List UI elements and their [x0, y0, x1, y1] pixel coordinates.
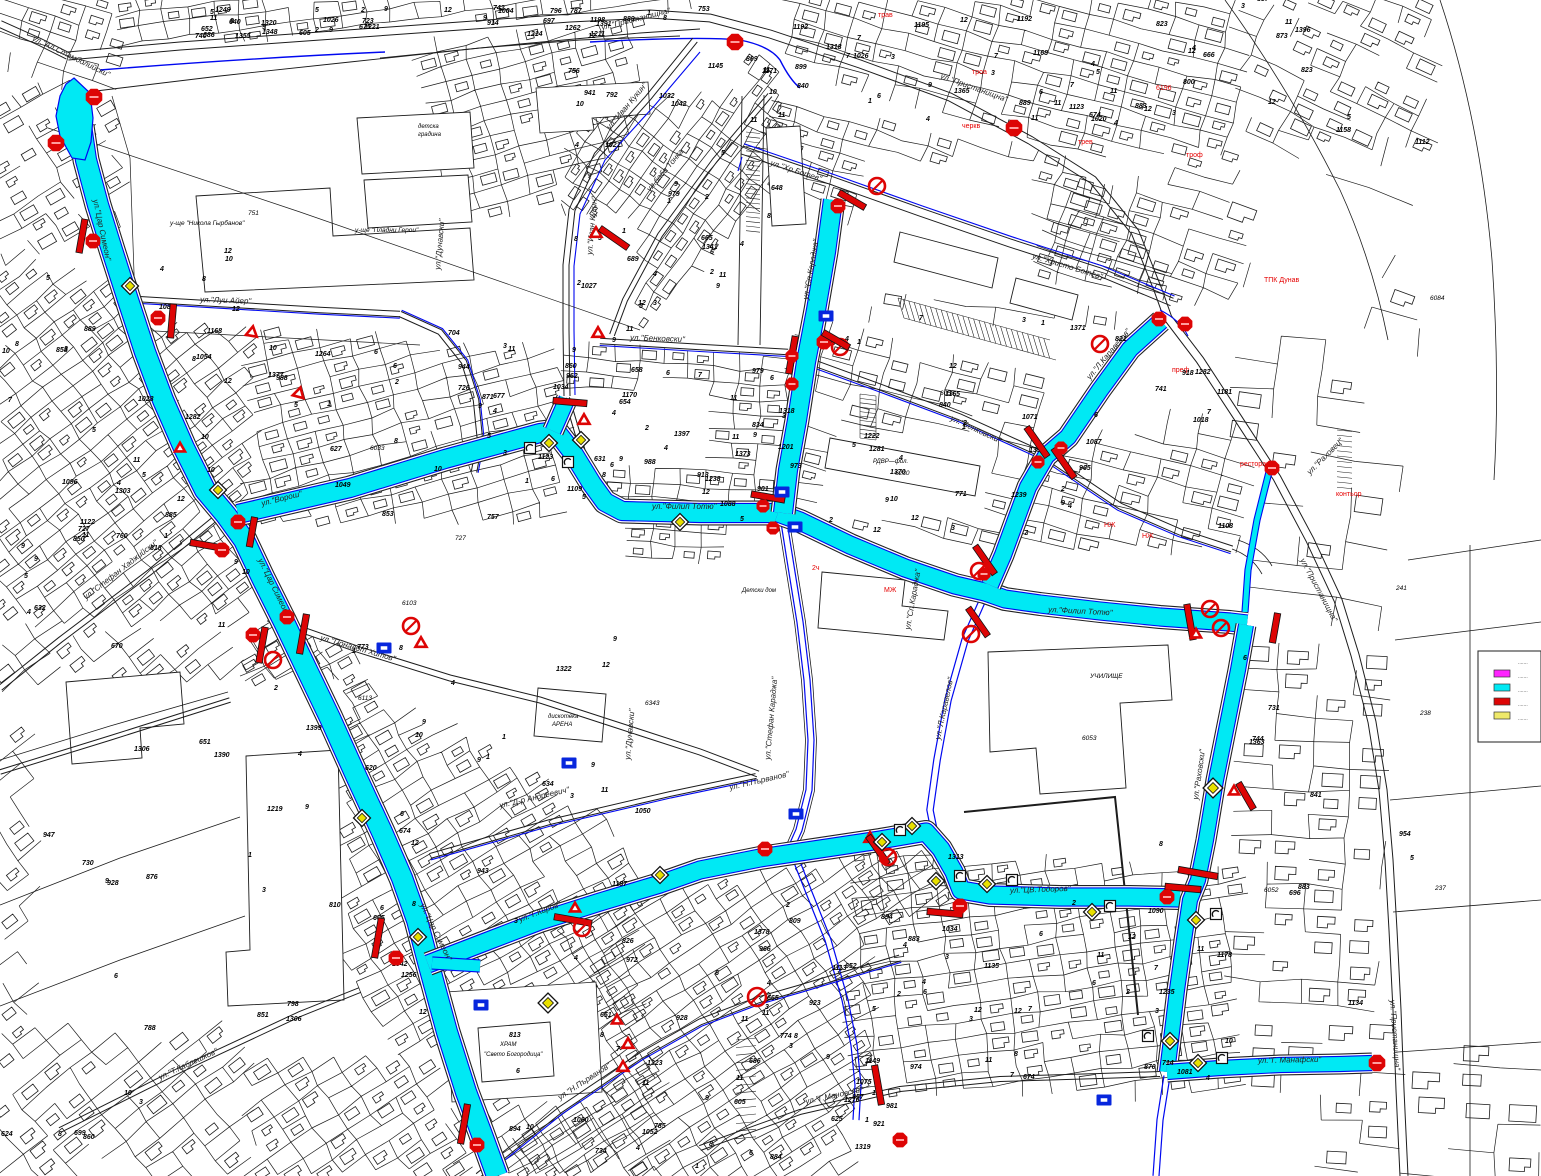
- svg-text:1: 1: [352, 648, 356, 655]
- svg-text:9: 9: [478, 403, 482, 410]
- svg-text:.......: .......: [1518, 702, 1528, 708]
- svg-text:6: 6: [1092, 980, 1096, 987]
- svg-text:821: 821: [1115, 336, 1127, 343]
- svg-text:5: 5: [1096, 69, 1100, 76]
- svg-text:2: 2: [394, 379, 399, 386]
- svg-text:8: 8: [192, 356, 196, 363]
- svg-text:1: 1: [857, 339, 861, 346]
- svg-text:АРЕНА: АРЕНА: [551, 722, 572, 728]
- svg-text:4: 4: [611, 410, 616, 417]
- svg-text:751: 751: [248, 210, 259, 217]
- svg-text:12: 12: [602, 662, 610, 669]
- svg-text:6113: 6113: [358, 695, 372, 702]
- svg-text:1256: 1256: [401, 972, 417, 979]
- svg-text:9: 9: [105, 878, 109, 885]
- svg-text:5: 5: [294, 402, 298, 409]
- svg-text:1026: 1026: [853, 53, 869, 60]
- svg-text:9: 9: [21, 543, 25, 550]
- svg-text:800: 800: [1183, 79, 1195, 86]
- svg-text:899: 899: [795, 64, 807, 71]
- svg-text:3: 3: [891, 54, 895, 61]
- svg-text:6: 6: [770, 375, 774, 382]
- svg-text:2: 2: [785, 902, 790, 909]
- svg-text:4: 4: [739, 241, 744, 248]
- svg-text:2: 2: [314, 27, 319, 34]
- svg-text:6: 6: [1094, 412, 1098, 419]
- svg-text:5: 5: [721, 150, 725, 157]
- svg-text:648: 648: [771, 185, 783, 192]
- svg-text:Детски дом: Детски дом: [741, 588, 776, 594]
- svg-text:2: 2: [709, 269, 714, 276]
- svg-text:1034: 1034: [942, 926, 958, 933]
- svg-text:10: 10: [2, 348, 10, 355]
- svg-text:10: 10: [124, 1090, 132, 1097]
- svg-text:1170: 1170: [622, 392, 637, 399]
- svg-text:894: 894: [509, 1126, 521, 1133]
- svg-text:3: 3: [653, 300, 657, 307]
- svg-text:1306: 1306: [286, 1016, 302, 1023]
- svg-text:4: 4: [921, 979, 926, 986]
- svg-text:1081: 1081: [1177, 1069, 1193, 1076]
- svg-text:11: 11: [133, 457, 140, 464]
- svg-text:3: 3: [1172, 110, 1176, 117]
- svg-text:796: 796: [550, 8, 562, 15]
- svg-text:11: 11: [218, 622, 225, 629]
- svg-text:870: 870: [1144, 1064, 1156, 1071]
- svg-text:1109: 1109: [567, 486, 582, 493]
- svg-text:11: 11: [741, 1016, 748, 1023]
- svg-text:9: 9: [34, 556, 38, 563]
- svg-text:237: 237: [1434, 885, 1446, 892]
- svg-text:6033: 6033: [370, 445, 385, 452]
- svg-text:1: 1: [502, 734, 506, 741]
- svg-text:5: 5: [740, 516, 744, 523]
- svg-text:1239: 1239: [1011, 492, 1027, 499]
- svg-text:3: 3: [945, 954, 949, 961]
- svg-text:9: 9: [928, 82, 932, 89]
- svg-text:241: 241: [1395, 585, 1407, 592]
- svg-text:974: 974: [910, 1064, 922, 1071]
- svg-text:11: 11: [626, 326, 633, 333]
- svg-text:5: 5: [315, 7, 319, 14]
- svg-text:4: 4: [492, 408, 497, 415]
- svg-text:853: 853: [382, 511, 394, 518]
- svg-text:625: 625: [831, 1116, 843, 1123]
- svg-text:8: 8: [794, 1033, 798, 1040]
- svg-text:12: 12: [974, 1007, 982, 1014]
- svg-text:1096: 1096: [62, 479, 78, 486]
- svg-text:12: 12: [419, 1009, 427, 1016]
- svg-text:1355: 1355: [235, 33, 251, 40]
- svg-text:6343: 6343: [645, 700, 660, 707]
- svg-text:8: 8: [1014, 1051, 1018, 1058]
- svg-text:889: 889: [623, 16, 635, 23]
- svg-text:665: 665: [701, 235, 713, 242]
- svg-text:4: 4: [635, 1145, 640, 1152]
- svg-text:941: 941: [584, 90, 596, 97]
- svg-text:2: 2: [1071, 900, 1076, 907]
- svg-text:3: 3: [789, 1043, 793, 1050]
- svg-text:9: 9: [572, 347, 576, 354]
- svg-text:889: 889: [1019, 100, 1031, 107]
- svg-text:.......: .......: [1518, 716, 1528, 722]
- svg-text:12: 12: [1268, 99, 1276, 106]
- svg-text:ул."Луи Айер": ул."Луи Айер": [199, 295, 253, 306]
- svg-text:6: 6: [1243, 655, 1247, 662]
- svg-text:2ч: 2ч: [812, 565, 820, 572]
- svg-text:11: 11: [985, 1057, 992, 1064]
- svg-text:675: 675: [359, 24, 371, 31]
- svg-text:4: 4: [116, 480, 121, 487]
- svg-text:9: 9: [674, 181, 678, 188]
- svg-text:8: 8: [1159, 841, 1163, 848]
- svg-text:1363: 1363: [1249, 739, 1265, 746]
- svg-text:1087: 1087: [1086, 439, 1103, 446]
- svg-text:2: 2: [1125, 989, 1130, 996]
- svg-text:9: 9: [305, 804, 309, 811]
- svg-text:1219: 1219: [267, 806, 283, 813]
- svg-text:1018: 1018: [1193, 417, 1209, 424]
- svg-text:727: 727: [455, 535, 466, 542]
- svg-text:5: 5: [46, 275, 50, 282]
- svg-text:753: 753: [698, 6, 710, 13]
- svg-text:787: 787: [570, 8, 583, 15]
- svg-text:652: 652: [201, 26, 213, 33]
- svg-text:11: 11: [778, 112, 785, 119]
- svg-text:12: 12: [873, 527, 881, 534]
- svg-text:1282: 1282: [185, 414, 201, 421]
- svg-text:4: 4: [925, 116, 930, 123]
- svg-text:3: 3: [1155, 1008, 1159, 1015]
- svg-text:1195: 1195: [914, 22, 929, 29]
- svg-text:1318: 1318: [826, 44, 842, 51]
- svg-text:10: 10: [576, 101, 584, 108]
- svg-text:9: 9: [885, 497, 889, 504]
- svg-text:9: 9: [619, 456, 623, 463]
- svg-text:6: 6: [380, 905, 384, 912]
- svg-text:2: 2: [644, 425, 649, 432]
- svg-text:9: 9: [705, 1095, 709, 1102]
- svg-text:3: 3: [503, 343, 507, 350]
- svg-text:9: 9: [612, 337, 616, 344]
- svg-text:4: 4: [26, 609, 31, 616]
- svg-text:6: 6: [1039, 89, 1043, 96]
- svg-text:798: 798: [287, 1001, 299, 1008]
- svg-text:1322: 1322: [556, 666, 572, 673]
- svg-text:943: 943: [477, 868, 489, 875]
- svg-text:дискотека: дискотека: [548, 714, 579, 720]
- svg-text:контьор: контьор: [1336, 491, 1362, 498]
- svg-text:черкв: черкв: [962, 123, 980, 130]
- svg-text:10: 10: [769, 89, 777, 96]
- svg-text:12: 12: [911, 515, 919, 522]
- svg-text:1135: 1135: [984, 963, 999, 970]
- svg-text:5: 5: [1410, 855, 1414, 862]
- svg-text:756: 756: [568, 68, 580, 75]
- svg-text:860: 860: [83, 1134, 95, 1141]
- svg-text:9: 9: [422, 719, 426, 726]
- svg-text:1282: 1282: [1195, 369, 1211, 376]
- svg-text:3: 3: [969, 1016, 973, 1023]
- svg-text:8: 8: [767, 213, 771, 220]
- svg-text:1: 1: [872, 1090, 876, 1097]
- svg-text:9: 9: [384, 6, 388, 13]
- svg-text:771: 771: [955, 491, 967, 498]
- svg-text:10: 10: [415, 732, 423, 739]
- svg-text:697: 697: [543, 18, 556, 25]
- svg-text:троа: троа: [972, 69, 987, 76]
- svg-text:605: 605: [734, 1099, 746, 1106]
- svg-text:921: 921: [873, 1121, 885, 1128]
- svg-text:1090: 1090: [1148, 908, 1164, 915]
- svg-text:трев: трев: [1078, 139, 1093, 146]
- svg-text:1123: 1123: [1069, 104, 1084, 111]
- svg-text:677: 677: [493, 393, 506, 400]
- svg-text:9: 9: [1061, 500, 1065, 507]
- svg-text:1397: 1397: [674, 431, 691, 438]
- svg-text:11: 11: [732, 434, 739, 441]
- svg-text:1306: 1306: [134, 746, 150, 753]
- svg-text:1168: 1168: [207, 328, 222, 335]
- svg-text:1075: 1075: [856, 1079, 872, 1086]
- svg-text:2: 2: [576, 280, 581, 287]
- svg-text:1313: 1313: [948, 854, 964, 861]
- svg-text:792: 792: [606, 92, 618, 99]
- svg-text:883: 883: [1298, 884, 1310, 891]
- svg-text:826: 826: [622, 938, 634, 945]
- svg-text:632: 632: [34, 605, 46, 612]
- svg-text:4: 4: [652, 271, 657, 278]
- svg-text:9: 9: [613, 636, 617, 643]
- svg-text:3: 3: [991, 70, 995, 77]
- svg-text:651: 651: [600, 1012, 612, 1019]
- svg-text:5: 5: [1347, 114, 1351, 121]
- svg-text:4: 4: [663, 445, 668, 452]
- svg-text:689: 689: [627, 256, 639, 263]
- svg-text:731: 731: [1268, 705, 1280, 712]
- svg-text:4: 4: [898, 455, 903, 462]
- svg-text:734: 734: [595, 1148, 607, 1155]
- svg-text:1021: 1021: [605, 142, 621, 149]
- svg-text:10: 10: [890, 496, 898, 503]
- svg-text:1: 1: [667, 198, 671, 205]
- svg-text:9: 9: [716, 283, 720, 290]
- svg-text:834: 834: [752, 422, 764, 429]
- svg-text:12: 12: [1144, 106, 1152, 113]
- svg-text:894: 894: [881, 914, 893, 921]
- svg-text:3: 3: [262, 887, 266, 894]
- svg-text:1052: 1052: [642, 1129, 658, 1136]
- svg-text:1249: 1249: [215, 7, 231, 14]
- svg-text:12: 12: [177, 496, 185, 503]
- svg-text:3: 3: [514, 918, 518, 925]
- svg-text:3: 3: [64, 346, 68, 353]
- svg-text:2: 2: [704, 194, 709, 201]
- svg-text:6084: 6084: [1430, 295, 1445, 302]
- svg-text:6: 6: [749, 1150, 753, 1157]
- svg-text:973: 973: [790, 463, 802, 470]
- svg-text:4: 4: [1191, 45, 1196, 52]
- svg-text:3: 3: [765, 1004, 769, 1011]
- svg-text:МЖ: МЖ: [884, 587, 897, 594]
- svg-text:5: 5: [872, 1006, 876, 1013]
- svg-text:11: 11: [1054, 100, 1061, 107]
- svg-text:788: 788: [144, 1025, 156, 1032]
- svg-text:1192: 1192: [1017, 16, 1032, 23]
- svg-text:954: 954: [1399, 831, 1411, 838]
- svg-text:6052: 6052: [1264, 887, 1279, 894]
- svg-text:6103: 6103: [402, 600, 417, 607]
- svg-text:1181: 1181: [1217, 389, 1232, 396]
- svg-text:1238: 1238: [705, 476, 721, 483]
- svg-text:2: 2: [962, 420, 967, 427]
- svg-text:914: 914: [487, 20, 499, 27]
- svg-text:6053: 6053: [1082, 735, 1097, 742]
- svg-text:11: 11: [719, 272, 726, 279]
- svg-text:5: 5: [142, 472, 146, 479]
- svg-text:674: 674: [1023, 1074, 1035, 1081]
- svg-text:1201: 1201: [778, 444, 794, 451]
- svg-text:666: 666: [1203, 52, 1215, 59]
- svg-text:1042: 1042: [671, 101, 687, 108]
- svg-text:6058: 6058: [940, 390, 955, 397]
- svg-text:9: 9: [477, 757, 481, 764]
- svg-text:12: 12: [224, 248, 232, 255]
- svg-text:883: 883: [908, 936, 920, 943]
- svg-text:у-ще "Пладни Герои": у-ще "Пладни Герои": [354, 226, 419, 234]
- svg-text:850: 850: [73, 536, 85, 543]
- svg-text:1377: 1377: [268, 372, 285, 379]
- svg-text:11: 11: [762, 1010, 769, 1017]
- svg-text:665: 665: [767, 995, 779, 1002]
- svg-text:1054: 1054: [196, 354, 212, 361]
- svg-text:1262: 1262: [565, 25, 581, 32]
- svg-text:9: 9: [826, 1054, 830, 1061]
- svg-text:651: 651: [199, 739, 211, 746]
- svg-text:857: 857: [1257, 0, 1270, 3]
- svg-text:918: 918: [1182, 370, 1194, 377]
- svg-text:8: 8: [15, 341, 19, 348]
- svg-text:884: 884: [770, 1154, 782, 1161]
- svg-text:"Свето Богородица": "Свето Богородица": [484, 1052, 543, 1058]
- svg-text:810: 810: [329, 902, 341, 909]
- svg-text:1112: 1112: [1415, 139, 1430, 146]
- svg-text:1: 1: [248, 852, 252, 859]
- svg-text:1026: 1026: [323, 17, 339, 24]
- svg-text:10: 10: [201, 434, 209, 441]
- svg-text:9: 9: [234, 559, 238, 566]
- svg-text:1034: 1034: [553, 384, 569, 391]
- svg-text:1050: 1050: [635, 808, 651, 815]
- svg-text:1391: 1391: [596, 21, 612, 28]
- svg-text:979: 979: [668, 191, 680, 198]
- svg-text:8: 8: [574, 236, 578, 243]
- svg-text:652: 652: [845, 963, 857, 970]
- svg-text:871: 871: [482, 394, 494, 401]
- svg-text:11: 11: [642, 1080, 649, 1087]
- svg-text:640: 640: [229, 19, 241, 26]
- svg-text:1371: 1371: [1070, 325, 1086, 332]
- svg-text:3: 3: [1241, 3, 1245, 10]
- svg-text:1: 1: [622, 228, 626, 235]
- svg-text:1264: 1264: [315, 351, 331, 358]
- svg-text:1134: 1134: [1348, 1000, 1363, 1007]
- svg-text:НЖ: НЖ: [1104, 522, 1116, 529]
- svg-text:1: 1: [865, 1117, 869, 1124]
- svg-text:1: 1: [647, 10, 651, 17]
- svg-text:840: 840: [797, 83, 809, 90]
- svg-text:12: 12: [588, 33, 596, 40]
- svg-text:760: 760: [116, 533, 128, 540]
- svg-text:1168: 1168: [1033, 50, 1048, 57]
- svg-text:1222: 1222: [864, 433, 880, 440]
- svg-text:11: 11: [750, 117, 757, 124]
- svg-text:6: 6: [877, 93, 881, 100]
- svg-text:5: 5: [639, 303, 643, 310]
- svg-text:923: 923: [809, 1000, 821, 1007]
- svg-text:857: 857: [852, 1094, 865, 1101]
- svg-text:823: 823: [1156, 21, 1168, 28]
- svg-text:876: 876: [146, 874, 158, 881]
- svg-text:4: 4: [297, 751, 302, 758]
- svg-text:624: 624: [1, 1131, 13, 1138]
- svg-text:1: 1: [1041, 320, 1045, 327]
- svg-text:8: 8: [58, 1131, 62, 1138]
- svg-text:6: 6: [114, 973, 118, 980]
- svg-text:ул."Г. Манафски": ул."Г. Манафски": [1257, 1055, 1323, 1065]
- svg-text:3: 3: [503, 450, 507, 457]
- svg-text:градина: градина: [418, 132, 442, 138]
- svg-text:УЧИЛИЩЕ: УЧИЛИЩЕ: [1089, 673, 1123, 680]
- svg-text:674: 674: [399, 828, 411, 835]
- svg-text:10: 10: [434, 466, 442, 473]
- svg-text:4: 4: [574, 142, 579, 149]
- svg-text:8: 8: [600, 1032, 604, 1039]
- svg-text:860: 860: [565, 363, 577, 370]
- svg-text:704: 704: [448, 330, 460, 337]
- svg-text:6230: 6230: [895, 470, 910, 477]
- svg-text:6: 6: [666, 370, 670, 377]
- svg-text:851: 851: [257, 1012, 269, 1019]
- svg-text:979: 979: [752, 368, 764, 375]
- svg-text:1071: 1071: [1022, 414, 1038, 421]
- svg-text:10: 10: [1225, 1038, 1233, 1045]
- svg-text:813: 813: [509, 1032, 521, 1039]
- svg-text:9: 9: [591, 762, 595, 769]
- svg-text:1: 1: [164, 533, 168, 540]
- svg-text:12: 12: [1014, 1008, 1022, 1015]
- svg-text:4: 4: [573, 955, 578, 962]
- svg-text:6: 6: [400, 811, 404, 818]
- svg-text:5: 5: [92, 427, 96, 434]
- svg-text:627: 627: [330, 446, 343, 453]
- svg-text:1049: 1049: [335, 482, 351, 489]
- svg-text:634: 634: [542, 781, 554, 788]
- svg-text:12: 12: [702, 489, 710, 496]
- svg-text:11: 11: [508, 346, 515, 353]
- svg-text:1: 1: [327, 401, 331, 408]
- svg-text:5: 5: [582, 494, 586, 501]
- svg-text:4: 4: [1067, 503, 1072, 510]
- svg-text:1004: 1004: [498, 8, 514, 15]
- svg-text:654: 654: [619, 399, 631, 406]
- svg-text:6: 6: [393, 363, 397, 370]
- svg-text:1145: 1145: [708, 63, 723, 70]
- svg-text:6: 6: [1039, 931, 1043, 938]
- svg-text:605: 605: [299, 30, 311, 37]
- svg-text:детска: детска: [418, 124, 439, 130]
- svg-text:757: 757: [487, 514, 500, 521]
